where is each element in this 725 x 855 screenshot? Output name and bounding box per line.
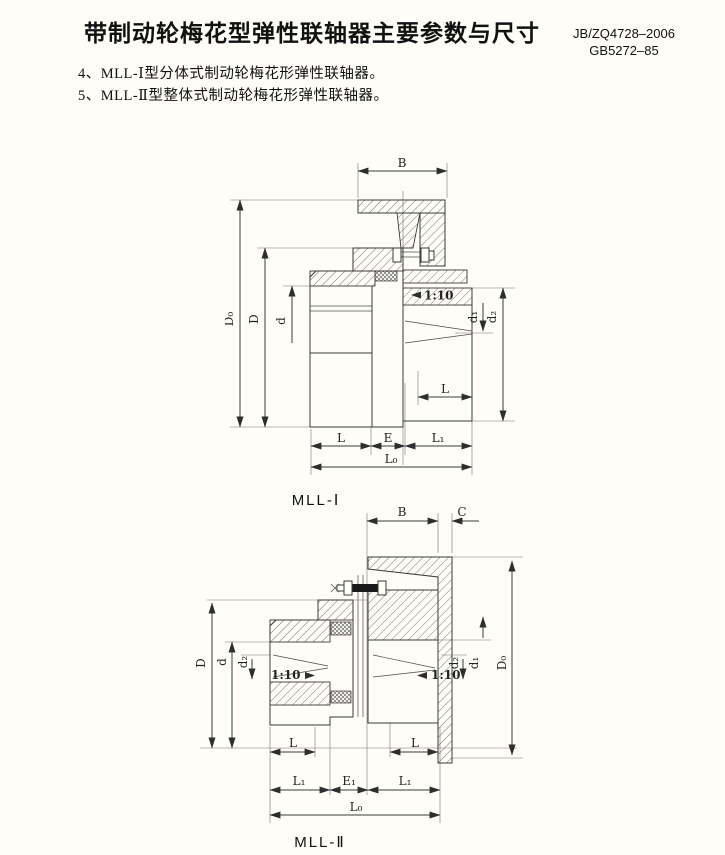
dim-label-d1: d₁ [467, 657, 481, 670]
flange-bolt [393, 248, 434, 262]
dim-label-L0: L₀ [350, 800, 363, 814]
dim-label-L-right: L [411, 736, 419, 750]
flange-bolt [331, 581, 386, 595]
taper-label-left: 1:10 [271, 668, 300, 682]
dim-label-d2: d₂ [485, 311, 499, 324]
dim-label-L: L [337, 431, 345, 445]
dim-label-d: d [215, 658, 229, 666]
dim-label-B: B [398, 156, 407, 170]
coupling-left-half [310, 248, 403, 427]
note-item-5: 5、MLL-Ⅱ型整体式制动轮梅花形弹性联轴器。 [78, 84, 389, 105]
dim-label-D: D [195, 658, 208, 668]
elastomer-spider [331, 691, 351, 703]
dim-label-L-right: L [441, 382, 449, 396]
elastomer-spider [331, 622, 351, 635]
figure2-caption: MLL-Ⅱ [294, 834, 346, 851]
standard-codes: JB/ZQ4728–2006 GB5272–85 [556, 25, 692, 59]
dim-label-d1: d₁ [466, 311, 480, 324]
elastomer-spider [375, 271, 397, 281]
dim-label-L1-right: L₁ [399, 774, 412, 788]
dim-label-D0: D₀ [495, 656, 509, 671]
dim-label-L1-left: L₁ [293, 774, 306, 788]
coupling-left-half [270, 575, 363, 725]
mll-1-drawing: B D₀ D d 1:10 d₁ d₂ L L E L₁ L₀ MLL-Ⅰ [225, 153, 525, 513]
taper-label-right: 1:10 [431, 668, 460, 682]
mll-2-drawing: B C D₀ d₁ d₂ D d d₂ 1:10 1:10 L L L₁ E₁ … [195, 505, 555, 855]
document-page: 带制动轮梅花型弹性联轴器主要参数与尺寸 JB/ZQ4728–2006 GB527… [0, 0, 725, 855]
coupling-right-half [368, 590, 438, 723]
dim-label-D: D [247, 314, 261, 324]
dim-label-L0: L₀ [385, 452, 398, 466]
dim-label-L1: L₁ [432, 431, 445, 445]
dim-label-E: E [384, 431, 393, 445]
dim-label-E1: E₁ [342, 774, 356, 788]
dim-label-L-left: L [289, 736, 297, 750]
note-item-4: 4、MLL-Ⅰ型分体式制动轮梅花形弹性联轴器。 [78, 62, 384, 83]
dim-label-C: C [457, 505, 466, 519]
dim-label-d: d [274, 317, 288, 325]
page-title: 带制动轮梅花型弹性联轴器主要参数与尺寸 [84, 14, 540, 48]
dim-label-D0: D₀ [225, 312, 236, 327]
taper-label: 1:10 [424, 289, 453, 303]
dim-label-B: B [398, 505, 407, 519]
standard-jb: JB/ZQ4728–2006 [556, 25, 692, 42]
standard-gb: GB5272–85 [556, 42, 692, 59]
dim-label-d2-left: d₂ [236, 656, 250, 669]
